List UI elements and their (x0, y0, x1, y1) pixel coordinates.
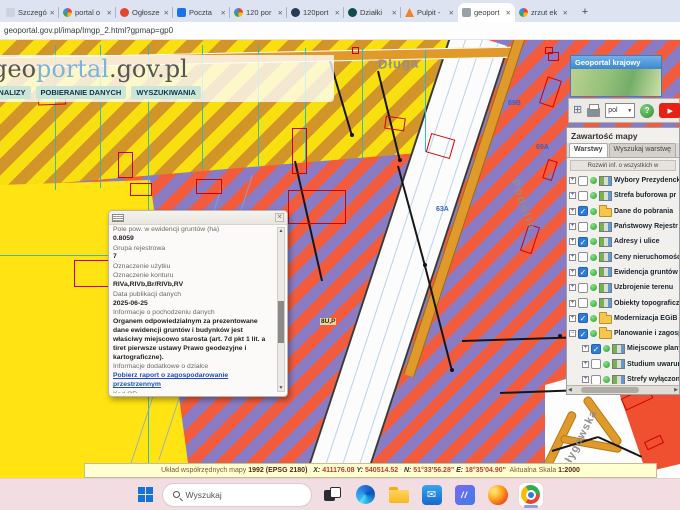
tabs-holder: Szczegó✕portal o✕Ogłosze✕Poczta✕120 por✕… (2, 3, 572, 22)
layer-icon (599, 176, 612, 186)
tab-title: 120port (303, 8, 332, 17)
status-segment: N: (398, 467, 413, 474)
layer-label[interactable]: Strefa buforowa pr (614, 192, 676, 199)
layer-checkbox[interactable] (591, 375, 601, 385)
geoportal-logo: geoportal.gov.pl (0, 55, 188, 83)
window-grid-icon[interactable] (573, 105, 582, 116)
utility-node (423, 263, 427, 267)
screen: Szczegó✕portal o✕Ogłosze✕Poczta✕120 por✕… (0, 0, 680, 510)
popup-field-label: Oznaczenie użytku (113, 263, 274, 272)
layer-label[interactable]: Ewidencja gruntów (614, 269, 678, 276)
layer-expander[interactable]: + (569, 208, 576, 215)
tab-title: zrzut ek (531, 8, 560, 17)
layer-checkbox[interactable]: ✓ (578, 267, 588, 277)
start-button[interactable] (138, 487, 153, 502)
status-segment: Aktualna Skala (506, 467, 558, 474)
building-outline (292, 128, 307, 174)
layer-label[interactable]: Modernizacja EGiB (614, 315, 677, 322)
printer-icon[interactable] (587, 108, 600, 117)
popup-field-label: Pole pow. w ewidencji gruntów (ha) (113, 226, 274, 235)
layer-label[interactable]: Obiekty topograficz (614, 300, 679, 307)
browser-tab[interactable]: geoport✕ (458, 3, 515, 22)
layer-label[interactable]: Miejscowe plany (627, 345, 679, 352)
layer-icon (612, 359, 625, 369)
layer-expander[interactable]: + (569, 238, 576, 245)
status-segment: 540514.52 (365, 467, 398, 474)
layer-expander[interactable]: − (569, 330, 576, 337)
expand-all-button[interactable]: Rozwiń inf. o wszystkich w (570, 160, 676, 171)
layer-expander[interactable]: + (569, 315, 576, 322)
layer-status-dot (590, 315, 597, 322)
menu-wyszukiwania[interactable]: WYSZUKIWANIA (131, 86, 201, 99)
layer-expander[interactable]: + (582, 376, 589, 383)
address-bar[interactable]: geoportal.gov.pl/imap/Imgp_2.html?gpmap=… (0, 22, 680, 40)
logo-geo: geo (0, 55, 36, 83)
layer-checkbox[interactable]: ✓ (578, 329, 588, 339)
browser-tab[interactable]: portal o✕ (59, 3, 116, 22)
tab-title: Szczegó (18, 8, 47, 17)
layer-checkbox[interactable] (578, 283, 588, 293)
building-outline (545, 47, 553, 54)
browser-tab-strip: Szczegó✕portal o✕Ogłosze✕Poczta✕120 por✕… (0, 0, 680, 22)
new-tab-button[interactable]: + (578, 5, 592, 19)
coordinate-status-bar: Układ współrzędnych mapy 1992 (EPSG 2180… (84, 463, 657, 478)
g-favicon (519, 8, 528, 17)
utility-node (398, 158, 402, 162)
overview-map-title: Geoportal krajowy (571, 56, 661, 69)
utility-node (350, 133, 354, 137)
language-value: pol (608, 107, 617, 114)
popup-field-value: 2025-06-25 (113, 300, 274, 309)
movies-app-icon[interactable]: // (453, 483, 477, 507)
utility-node (558, 334, 562, 338)
layer-icon (599, 267, 612, 277)
layer-expander[interactable]: + (569, 300, 576, 307)
firefox-icon[interactable] (486, 483, 510, 507)
browser-tab[interactable]: Poczta✕ (173, 3, 230, 22)
horizontal-scrollbar[interactable]: ◀ ▶ (567, 385, 679, 394)
browser-tab[interactable]: Ogłosze✕ (116, 3, 173, 22)
layer-item[interactable]: +Ceny nieruchomośc (569, 249, 679, 264)
overview-map-thumbnail[interactable] (571, 69, 661, 96)
parcel-info-popup: ✕ Pole pow. w ewidencji gruntów (ha)0.80… (108, 210, 288, 397)
parcel-line (362, 48, 363, 158)
language-select[interactable]: pol▼ (605, 103, 635, 118)
menu-pobieranie-danych[interactable]: POBIERANIE DANYCH (36, 86, 127, 99)
map-contents-panel: Zawartość mapy Warstwy Wyszukaj warstwę … (566, 127, 680, 395)
popup-field-value: Organem odpowiedzialnym za prezentowane … (113, 318, 274, 362)
layer-status-dot (603, 376, 610, 383)
browser-tab[interactable]: Pulpit -✕ (401, 3, 458, 22)
layer-item[interactable]: +✓Miejscowe plany (569, 341, 679, 356)
chevron-down-icon: ▼ (627, 108, 632, 114)
layer-expander[interactable]: + (569, 192, 576, 199)
layer-tree: +Wybory Prezydenck+Strefa buforowa pr+✓D… (569, 173, 679, 384)
layer-status-dot (590, 238, 597, 245)
layer-item[interactable]: +✓Dane do pobrania (569, 204, 679, 219)
layer-item[interactable]: +Strefy wyłączon (569, 372, 679, 384)
status-segment: 1992 (EPSG 2180) (248, 467, 307, 474)
layer-item[interactable]: −✓Planowanie i zagospodar (569, 326, 679, 341)
layer-checkbox[interactable]: ✓ (578, 206, 588, 216)
layer-expander[interactable]: + (582, 361, 589, 368)
tab-title: Poczta (189, 8, 218, 17)
layer-checkbox[interactable] (578, 252, 588, 262)
tab-title: Działki (360, 8, 389, 17)
layer-status-dot (590, 208, 597, 215)
popup-field-label: Data publikacji danych (113, 291, 274, 300)
layer-item[interactable]: +✓Adresy i ulice (569, 234, 679, 249)
layer-icon (612, 375, 625, 385)
help-button[interactable]: ? (640, 104, 654, 118)
youtube-button[interactable]: ▶ (659, 103, 680, 118)
layer-label[interactable]: Dane do pobrania (614, 208, 673, 215)
popup-field-label: Grupa rejestrowa (113, 245, 274, 254)
status-segment: 411176.08 (322, 467, 356, 474)
layer-status-dot (590, 177, 597, 184)
scroll-thumb[interactable] (278, 301, 284, 343)
layer-expander[interactable]: + (582, 345, 589, 352)
parcel-label-89b: 89B (508, 100, 521, 107)
g-favicon (63, 8, 72, 17)
popup-download-link[interactable]: Pobierz raport o zagospodarowanie przest… (113, 372, 274, 390)
layer-checkbox[interactable]: ✓ (578, 313, 588, 323)
orange-favicon (405, 8, 414, 17)
layer-icon (599, 298, 612, 308)
layer-item[interactable]: +Strefa buforowa pr (569, 188, 679, 203)
windows-taskbar: Wyszukaj ✉ // (0, 478, 680, 510)
layer-item[interactable]: +Obiekty topograficz (569, 295, 679, 310)
layer-label[interactable]: Studium uwarun (627, 361, 679, 368)
layer-status-dot (590, 254, 597, 261)
browser-tab[interactable]: zrzut ek✕ (515, 3, 572, 22)
search-icon (173, 491, 180, 498)
layer-item[interactable]: +✓Modernizacja EGiB (569, 311, 679, 326)
tab-title: portal o (75, 8, 104, 17)
folder-icon (599, 208, 612, 217)
layer-label[interactable]: Adresy i ulice (614, 238, 660, 245)
tab-close-icon[interactable]: ✕ (107, 9, 112, 17)
layer-checkbox[interactable] (578, 222, 588, 232)
layer-status-dot (590, 269, 597, 276)
folder-icon (599, 315, 612, 324)
page-url: geoportal.gov.pl/imap/Imgp_2.html?gpmap=… (4, 26, 173, 35)
browser-tab[interactable]: Działki✕ (344, 3, 401, 22)
geoportal-menu: ANALIZY POBIERANIE DANYCH WYSZUKIWANIA (0, 86, 201, 99)
tab-warstwy[interactable]: Warstwy (569, 143, 608, 157)
file-explorer-icon[interactable] (387, 483, 411, 507)
building-outline (196, 179, 222, 194)
popup-field-label: Oznaczenie konturu (113, 272, 274, 281)
layer-label[interactable]: Ceny nieruchomośc (614, 254, 679, 261)
popup-field-label: Informacje o pochodzeniu danych (113, 309, 274, 318)
tab-title: geoport (474, 8, 503, 17)
mail-favicon (177, 8, 186, 17)
status-segment: Układ współrzędnych mapy (161, 467, 248, 474)
building-outline (384, 116, 406, 132)
tab-title: Pulpit - (417, 8, 446, 17)
layer-icon (599, 222, 612, 232)
popup-field-value: 0.8059 (113, 235, 274, 244)
layer-expander[interactable]: + (569, 177, 576, 184)
zoning-label: 8U,P (320, 318, 336, 325)
tab-close-icon[interactable]: ✕ (164, 9, 169, 17)
list-icon[interactable] (112, 214, 124, 222)
tab-close-icon[interactable]: ✕ (506, 9, 511, 17)
panel-title: Zawartość mapy (567, 128, 679, 143)
layer-status-dot (603, 345, 610, 352)
tab-wyszukaj-warstwe[interactable]: Wyszukaj warstwę (609, 143, 677, 157)
layer-icon (599, 237, 612, 247)
tab-close-icon[interactable]: ✕ (335, 9, 340, 17)
close-icon[interactable]: ✕ (275, 213, 284, 222)
scroll-down-icon[interactable]: ▼ (278, 385, 284, 391)
parcel-line (425, 50, 426, 152)
building-outline (130, 183, 152, 196)
layer-checkbox[interactable] (578, 176, 588, 186)
none-favicon (6, 8, 15, 17)
scroll-up-icon[interactable]: ▲ (278, 228, 284, 234)
utility-node (450, 368, 454, 372)
layer-item[interactable]: +Studium uwarun (569, 357, 679, 372)
status-segment: E: (456, 467, 465, 474)
layer-checkbox[interactable] (578, 298, 588, 308)
logo-govpl: .gov.pl (109, 55, 188, 83)
geoportal-branding: geoportal.gov.pl ANALIZY POBIERANIE DANY… (0, 55, 334, 102)
panel-tabs: Warstwy Wyszukaj warstwę (567, 143, 679, 158)
overview-map-panel: Geoportal krajowy (570, 55, 662, 97)
layer-item[interactable]: +✓Ewidencja gruntów (569, 265, 679, 280)
logo-portal: portal (36, 55, 109, 83)
folder-icon (599, 330, 612, 339)
browser-tab[interactable]: 120port✕ (287, 3, 344, 22)
layer-label[interactable]: Państwowy Rejestr (614, 223, 678, 230)
tab-close-icon[interactable]: ✕ (50, 9, 55, 17)
building-outline (288, 190, 346, 224)
parcel-line (0, 255, 108, 256)
tab-title: 120 por (246, 8, 275, 17)
layer-checkbox[interactable]: ✓ (578, 237, 588, 247)
layer-label[interactable]: Strefy wyłączon (627, 376, 679, 383)
layer-status-dot (590, 330, 597, 337)
sidebar-toolbar: pol▼ ? ▶ (568, 98, 680, 123)
tab-title: Ogłosze (132, 8, 161, 17)
scroll-right-icon[interactable]: ▶ (674, 387, 678, 393)
layer-label[interactable]: Wybory Prezydenck (614, 177, 679, 184)
status-segment: 51°33'56.28" (413, 467, 456, 474)
globe-favicon (291, 8, 300, 17)
scroll-left-icon[interactable]: ◀ (568, 387, 572, 393)
layer-expander[interactable]: + (569, 254, 576, 261)
scroll-thumb[interactable] (581, 387, 639, 393)
popup-scrollbar[interactable]: ▲ ▼ (277, 227, 285, 392)
layer-expander[interactable]: + (569, 223, 576, 230)
layer-status-dot (590, 300, 597, 307)
parcel-label-69a: 69A (536, 144, 549, 151)
status-segment: 18°35'04.90" (465, 467, 506, 474)
tab-close-icon[interactable]: ✕ (221, 9, 226, 17)
layer-expander[interactable]: + (569, 284, 576, 291)
status-segment: Y: (356, 467, 365, 474)
browser-tab[interactable]: 120 por✕ (230, 3, 287, 22)
layer-expander[interactable]: + (569, 269, 576, 276)
layer-icon (612, 344, 625, 354)
layer-icon (599, 283, 612, 293)
parcel-label-63a: 63A (436, 206, 449, 213)
layer-item[interactable]: +Wybory Prezydenck (569, 173, 679, 188)
building-outline (118, 152, 133, 178)
layer-status-dot (603, 361, 610, 368)
mail-icon[interactable]: ✉ (420, 483, 444, 507)
geo-favicon (462, 8, 471, 17)
menu-analizy[interactable]: ANALIZY (0, 86, 31, 99)
layer-item[interactable]: +Państwowy Rejestr (569, 219, 679, 234)
layer-checkbox[interactable] (578, 191, 588, 201)
popup-body: Pole pow. w ewidencji gruntów (ha)0.8059… (113, 226, 274, 393)
layer-label[interactable]: Planowanie i zagospodar (614, 330, 679, 337)
red-favicon (120, 8, 129, 17)
popup-field-value: RIVa,RIVb,Br/RIVb,RV (113, 281, 274, 290)
g-favicon (234, 8, 243, 17)
layer-status-dot (590, 284, 597, 291)
layer-status-dot (590, 223, 597, 230)
taskbar-search[interactable]: Wyszukaj (162, 483, 312, 507)
layer-checkbox[interactable]: ✓ (591, 344, 601, 354)
popup-field-label: Kod QR (113, 391, 274, 393)
building-outline (352, 47, 359, 54)
layer-item[interactable]: +Uzbrojenie terenu (569, 280, 679, 295)
edge-icon[interactable] (354, 483, 378, 507)
tab-close-icon[interactable]: ✕ (563, 9, 568, 17)
browser-tab[interactable]: Szczegó✕ (2, 3, 59, 22)
tab-close-icon[interactable]: ✕ (278, 9, 283, 17)
task-view-button[interactable] (321, 483, 345, 507)
popup-header: ✕ (109, 211, 287, 225)
dark-favicon (348, 8, 357, 17)
layer-label[interactable]: Uzbrojenie terenu (614, 284, 673, 291)
status-segment: X: (307, 467, 322, 474)
street-label-dluga: Długa (378, 55, 420, 71)
search-placeholder: Wyszukaj (186, 490, 222, 500)
popup-field-label: Informacje dodatkowe o działce (113, 363, 274, 372)
tab-close-icon[interactable]: ✕ (449, 9, 454, 17)
layer-checkbox[interactable] (591, 359, 601, 369)
status-segment: 1:2000 (558, 467, 580, 474)
chrome-icon[interactable] (519, 483, 543, 507)
popup-field-value: 7 (113, 253, 274, 262)
layer-icon (599, 191, 612, 201)
tab-close-icon[interactable]: ✕ (392, 9, 397, 17)
layer-icon (599, 252, 612, 262)
layer-status-dot (590, 192, 597, 199)
